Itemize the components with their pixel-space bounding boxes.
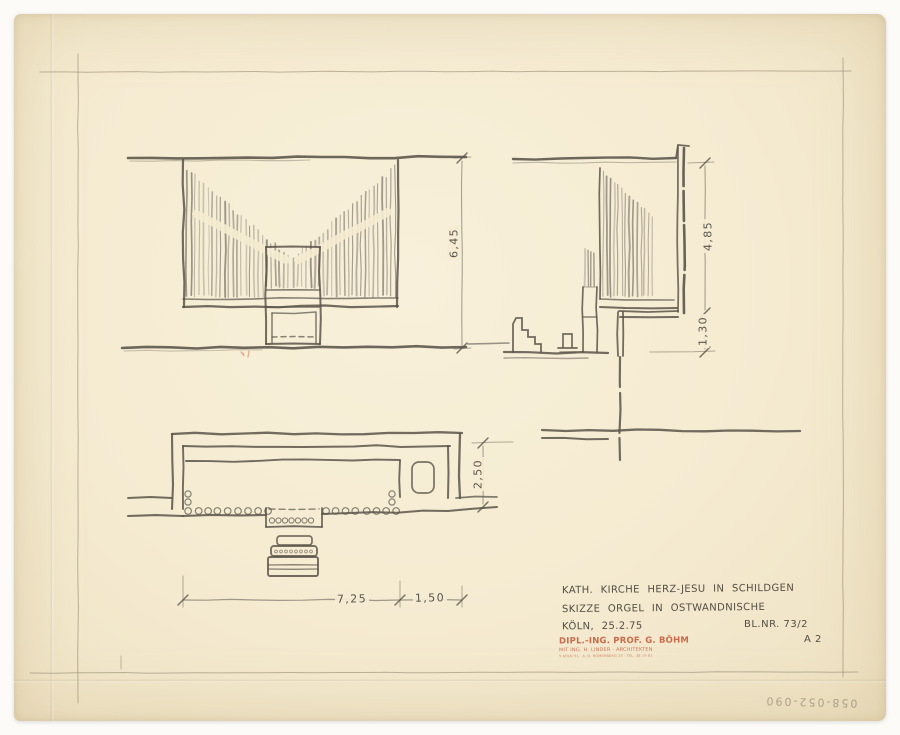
dim-label-plan-main-width: 7,25 (335, 592, 369, 606)
architect-stamp-address: 5 KÖLN 51 · A. D. RÖMERBERG 25 · TEL. 38… (559, 654, 653, 659)
dim-label-section-upper-height: 4,85 (702, 219, 715, 253)
dim-label-elevation-height: 6,45 (448, 226, 461, 260)
architect-stamp-name: DIPL.-ING. PROF. G. BÖHM (559, 636, 689, 647)
tracing-paper-sheet (14, 14, 886, 721)
archive-inventory-number: 058-052-090 (764, 694, 857, 709)
dim-label-section-parapet-height: 1,30 (697, 314, 710, 348)
scanned-drawing-page: 6,45 4,85 1,30 2,50 7,25 1,50 KATH. KIRC… (0, 0, 900, 735)
sheet-number: BL.NR. 73/2 (744, 619, 808, 630)
paper-fold-crease-horizontal (14, 679, 886, 683)
dim-label-plan-side-width: 1,50 (413, 591, 447, 605)
title-line-3-date: KÖLN, 25.2.75 (562, 621, 643, 633)
paper-fold-crease-vertical (50, 14, 54, 721)
architect-stamp-partner: MIT ING. H. LINDER · ARCHITEKTEN (559, 647, 653, 654)
dim-label-plan-depth: 2,50 (472, 457, 485, 491)
sheet-format: A 2 (804, 634, 822, 645)
title-line-2: SKIZZE ORGEL IN OSTWANDNISCHE (562, 602, 765, 615)
